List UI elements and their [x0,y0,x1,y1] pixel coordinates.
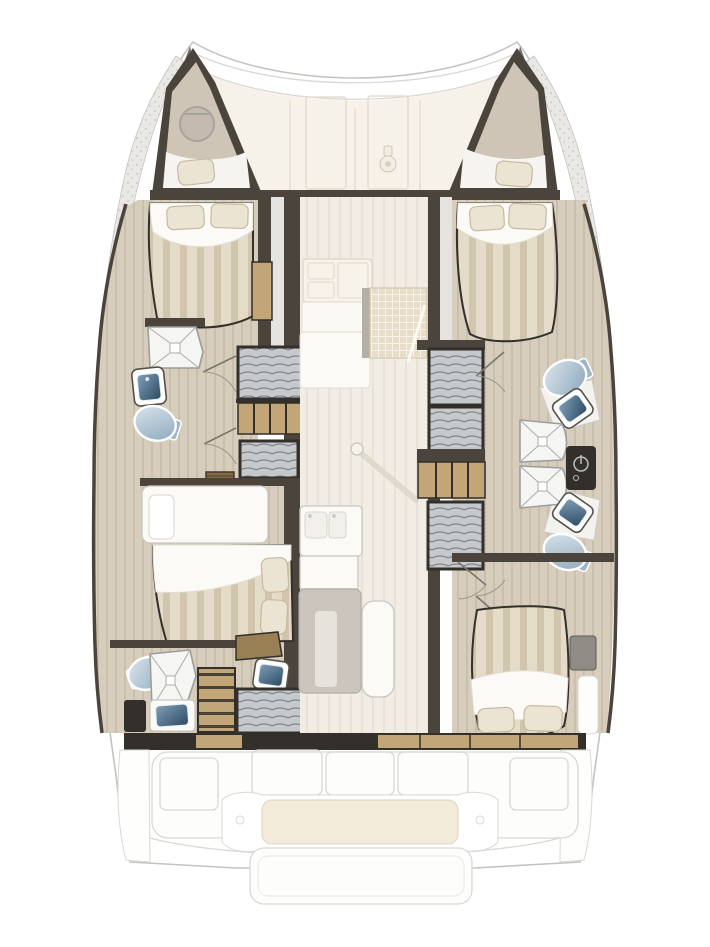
port-aft-wing [118,750,150,862]
aft-wood-trim [196,735,242,748]
galley-sink [300,506,362,556]
bow-hatch [180,107,214,141]
bathroom-divider [110,640,240,648]
shelf-lip [417,449,485,462]
starboard-walkway-strip [440,197,452,352]
galley-counter [302,302,370,332]
pillow [211,203,249,228]
port-aft-bathroom [110,632,302,733]
mat-frame [362,288,370,358]
starboard-forward-cabin [457,203,557,341]
port-walkway-strip [271,197,284,352]
pillow [260,599,288,634]
side-shelf [578,676,598,734]
aft-bulkhead [124,733,586,750]
cabin-divider [452,553,614,562]
shower-drain [166,676,175,685]
port-forward-cabin [149,203,272,328]
shelf-unit [418,462,485,498]
pillow [508,203,546,230]
bench-seat [362,601,394,697]
galley-stove [303,259,372,302]
side-shelf [252,262,272,320]
washbasin [131,366,167,406]
pillow [261,557,289,593]
aft-wood-trim [378,735,578,748]
shower-drain [538,437,547,446]
pillow [166,205,204,230]
saloon [299,197,428,737]
floor-plan-canvas [0,0,710,947]
pillow [477,707,514,733]
cabin-divider [140,478,300,486]
cockpit [118,750,592,904]
mast-post [351,443,363,455]
hanging-locker [429,349,483,405]
saloon-table-inlay [315,611,337,687]
shower-drain [170,343,180,353]
hanging-locker [238,347,302,399]
sunbed-cushion [262,800,458,844]
shower-drain [538,482,547,491]
pillow [469,205,505,231]
bow-cushion [177,158,215,186]
pillow [524,705,563,731]
shelf-unit [238,403,302,434]
cabinet [124,700,146,732]
galley-counter [300,332,370,388]
side-shelf [236,632,282,660]
bow-cushion [495,160,533,187]
washbasin [155,704,188,727]
hanging-locker [237,689,302,733]
drawer-unit [198,668,235,732]
washbasin [252,658,290,692]
locker [570,636,596,670]
shower-wall [145,318,205,327]
vanity-seat [149,495,174,539]
port-bathroom-floor [94,352,258,480]
hanging-locker [240,441,298,478]
galley-cabinet [300,556,358,589]
utility-panel [566,446,596,490]
catamaran-floor-plan [0,0,710,947]
